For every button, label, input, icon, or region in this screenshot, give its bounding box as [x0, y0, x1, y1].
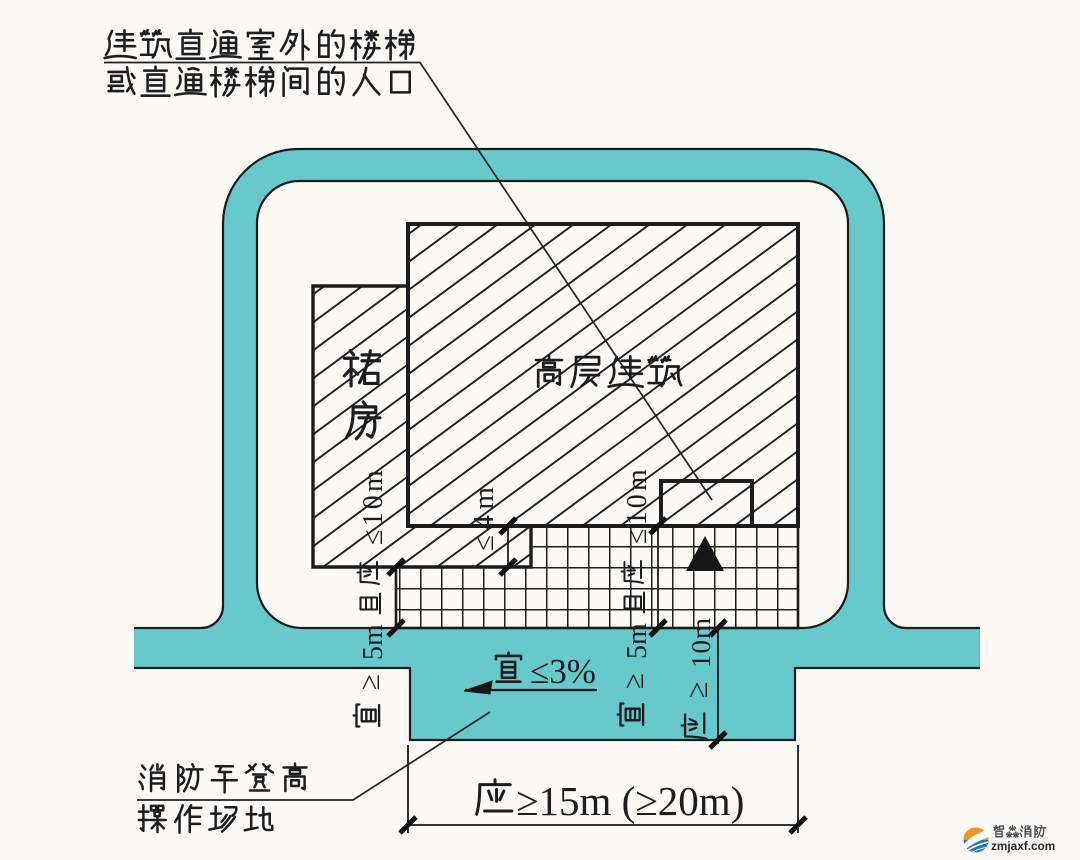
- svg-text:≥15m (≥20m): ≥15m (≥20m): [516, 778, 744, 824]
- svg-text:≥: ≥: [354, 674, 386, 690]
- svg-text:≤10m: ≤10m: [622, 466, 653, 544]
- svg-text:≥: ≥: [618, 673, 650, 689]
- svg-text:5m: 5m: [622, 623, 653, 659]
- svg-text:≤3%: ≤3%: [530, 652, 596, 691]
- svg-text:≥: ≥: [681, 682, 714, 698]
- svg-text:10m: 10m: [686, 617, 716, 668]
- svg-text:≤10m: ≤10m: [358, 467, 389, 545]
- svg-text:≤4m: ≤4m: [468, 482, 500, 551]
- svg-text:zmjaxf.com: zmjaxf.com: [991, 839, 1055, 853]
- svg-text:5m: 5m: [358, 624, 389, 660]
